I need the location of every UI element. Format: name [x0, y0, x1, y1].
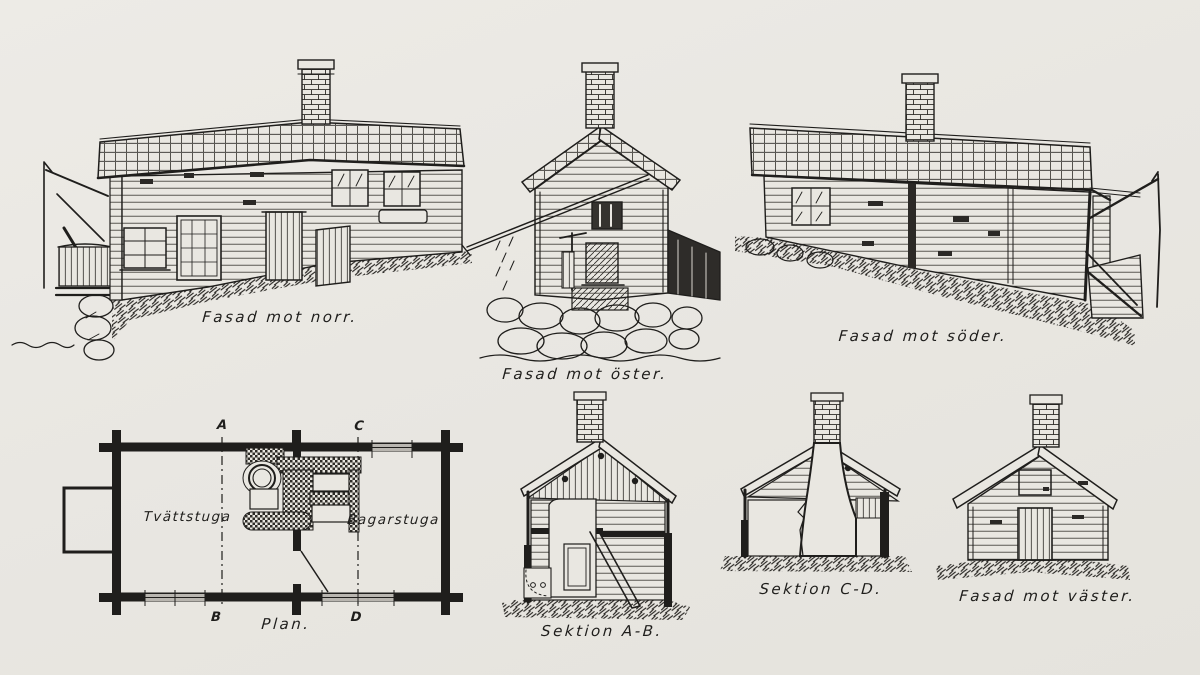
facade-west-label: Fasad mot väster. [939, 587, 1155, 605]
dark-divider-board [908, 181, 916, 268]
ground-hatch [720, 556, 912, 572]
window [120, 228, 170, 270]
door-swing [301, 551, 328, 592]
plan-marker-c: C [350, 419, 367, 434]
loft-hatch [1019, 470, 1051, 495]
grid-door [177, 216, 221, 280]
chimney [811, 393, 843, 443]
section-ab-label: Sektion A-B. [501, 622, 702, 640]
room-label-bagarstuga: Bagarstuga [335, 512, 451, 528]
chimney [1030, 395, 1062, 447]
window [592, 202, 622, 229]
plank-gate [316, 226, 350, 286]
facade-south-label: Fasad mot söder. [807, 327, 1038, 345]
chimney [574, 392, 606, 442]
annex-outline [64, 488, 112, 552]
plan-marker-b: B [207, 610, 224, 625]
corner-log-ends [110, 172, 122, 300]
room-label-tvattstuga: Tvättstuga [129, 509, 245, 525]
plan-label: Plan. [230, 615, 341, 633]
chimney [902, 74, 938, 141]
chimney [298, 60, 334, 124]
plank-door [262, 212, 306, 280]
plan-marker-a: A [213, 418, 230, 433]
window-with-box [379, 172, 427, 223]
plan-marker-d: D [347, 610, 364, 625]
door [1014, 508, 1056, 560]
section-ab-drawing [502, 392, 690, 620]
section-cd-drawing [720, 393, 912, 572]
stone-pillar [75, 295, 114, 360]
window [332, 170, 368, 206]
facade-south-drawing [735, 74, 1160, 346]
firebox [250, 489, 278, 509]
facade-east-label: Fasad mot öster. [479, 365, 690, 383]
ground-line [480, 355, 720, 361]
lean-to-fence [668, 230, 720, 300]
facade-east-drawing [462, 63, 720, 361]
drawing-sheet: Fasad mot norr. Fasad mot öster. Fasad m… [0, 0, 1200, 675]
window [792, 188, 830, 225]
roof [98, 122, 464, 178]
facade-west-drawing [936, 395, 1130, 580]
chimney [582, 63, 618, 128]
hatched-band [856, 498, 884, 518]
grass-line [12, 343, 74, 348]
oven-chamber [313, 474, 349, 491]
section-cd-label: Sektion C-D. [720, 580, 921, 598]
facade-north-label: Fasad mot norr. [169, 308, 390, 326]
grass-tufts [496, 237, 514, 290]
